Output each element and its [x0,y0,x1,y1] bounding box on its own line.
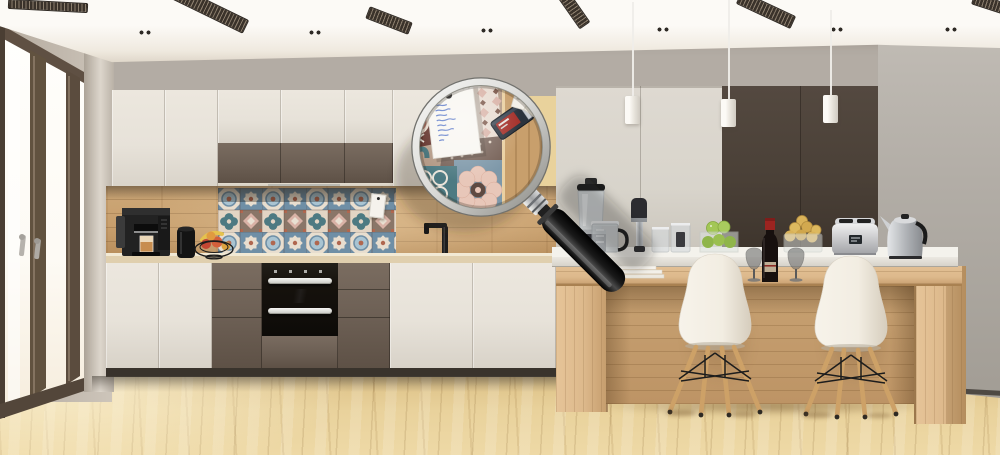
toaster [832,218,878,255]
pendant-light [625,96,640,124]
apple-vase [700,221,738,252]
black-canister [177,227,195,259]
oven [262,263,338,336]
base-cabinet-door [390,263,473,370]
tape-measure [490,100,535,140]
base-cabinet-door [159,263,212,370]
measuring-jug [591,221,627,252]
oven-handle [268,308,332,314]
spotlight-icon [308,30,322,35]
cabinet-shadow [106,186,556,200]
oven-controls [274,270,330,273]
upper-cabinet-door [218,90,281,145]
foot-shadow [730,412,756,417]
oven-handle [268,278,332,284]
chair-shell [815,256,887,347]
storage-jars [652,223,690,252]
pendant-cord [632,2,634,97]
foot-shadow [866,413,892,418]
kitchen-scene [0,0,1000,455]
spotlight-icon [830,27,844,32]
hand-blender [631,198,647,252]
bar-chair [799,253,903,419]
pinned-tag [369,193,387,219]
upper-cabinet-door [165,90,218,192]
upper-cabinet-door [393,90,452,191]
base-cabinet-door [106,263,159,370]
coffee-machine [116,208,170,256]
pendant-cord [830,10,832,96]
pendant-light [721,99,736,127]
board-stack [612,266,664,278]
left-counter-appliances [116,202,240,260]
price-tag [524,93,547,117]
chair-shell [679,254,751,345]
french-window [0,16,86,418]
upper-cabinet-brown [345,143,393,183]
oven-base-drawer [262,336,338,368]
spotlight-icon [656,27,670,32]
upper-cabinet-door [345,90,393,145]
upper-cabinet-door [281,90,345,145]
floor-shadow [92,376,568,392]
base-drawer-stack [338,263,390,368]
fruit-basket [195,232,233,259]
pendant-cord [728,0,730,100]
upper-cabinet-brown [281,143,345,183]
base-drawer-stack [212,263,262,368]
bar-chair [663,251,767,417]
upper-cabinet-brown [218,143,281,183]
upper-cabinet-door [112,90,165,192]
foot-shadow [666,410,696,416]
pendant-light [823,95,838,123]
spotlight-icon [138,30,152,35]
fruit-bowl [784,216,822,253]
spotlight-icon [944,27,958,32]
window-mullion [30,50,46,398]
base-cabinet-door [473,263,556,370]
foot-shadow [802,412,832,418]
spotlight-icon [480,28,494,33]
